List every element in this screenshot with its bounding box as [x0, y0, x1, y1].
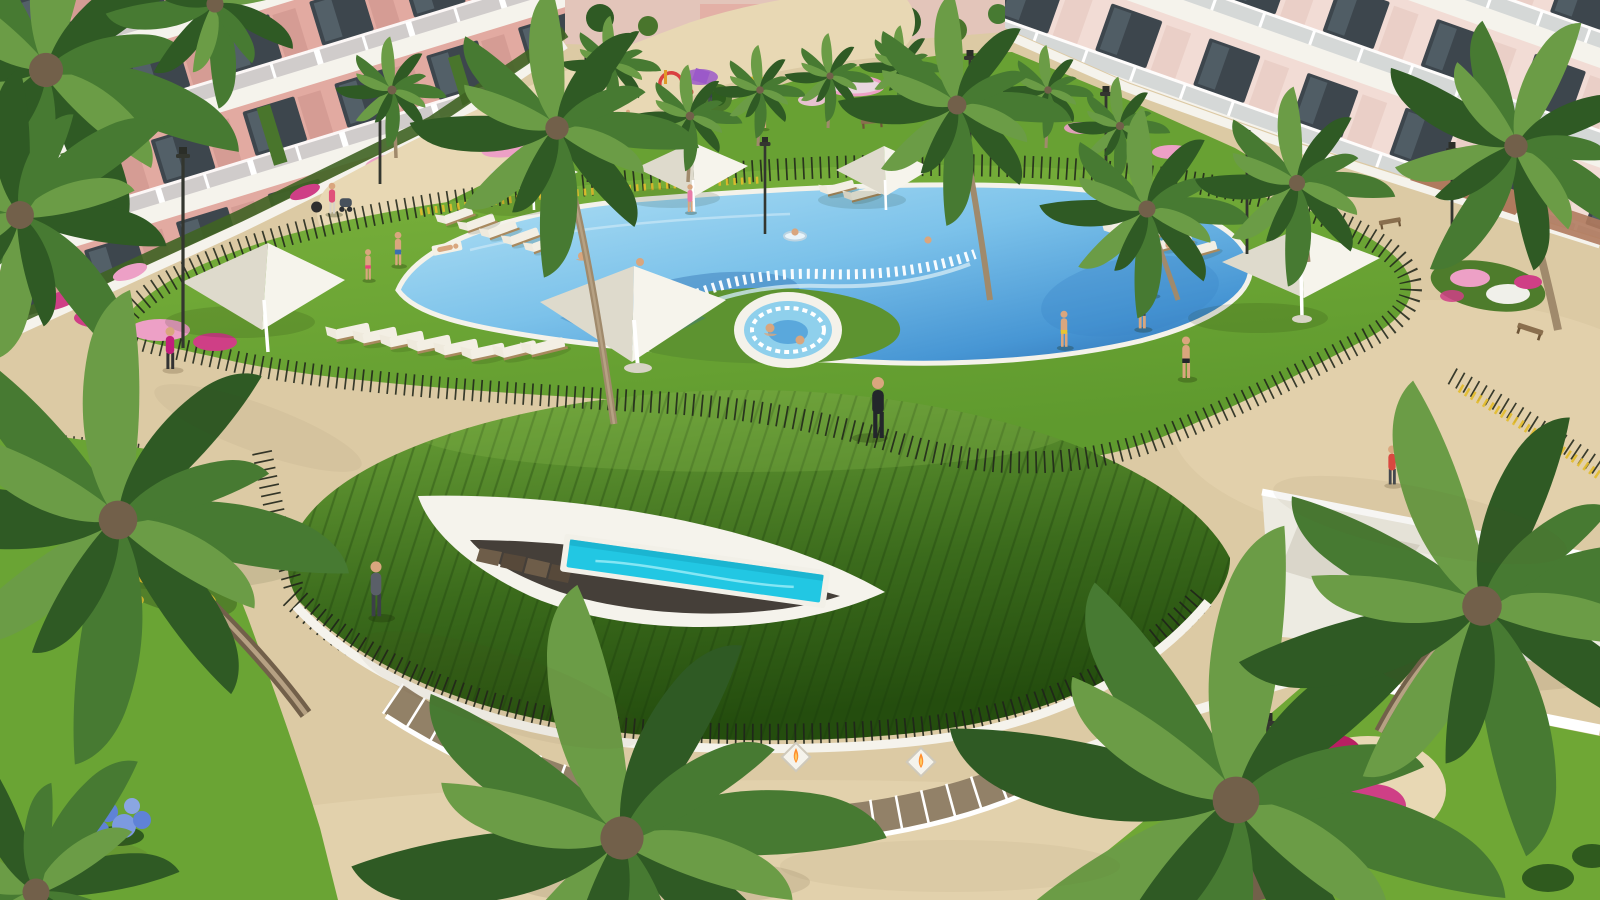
- corner-hedge: [1522, 864, 1574, 892]
- stroller: [340, 198, 352, 207]
- resort-aerial-render: [0, 0, 1600, 900]
- render-viewport: [0, 0, 1600, 900]
- bbq-grill: [311, 202, 322, 213]
- spa-pool: [734, 292, 842, 368]
